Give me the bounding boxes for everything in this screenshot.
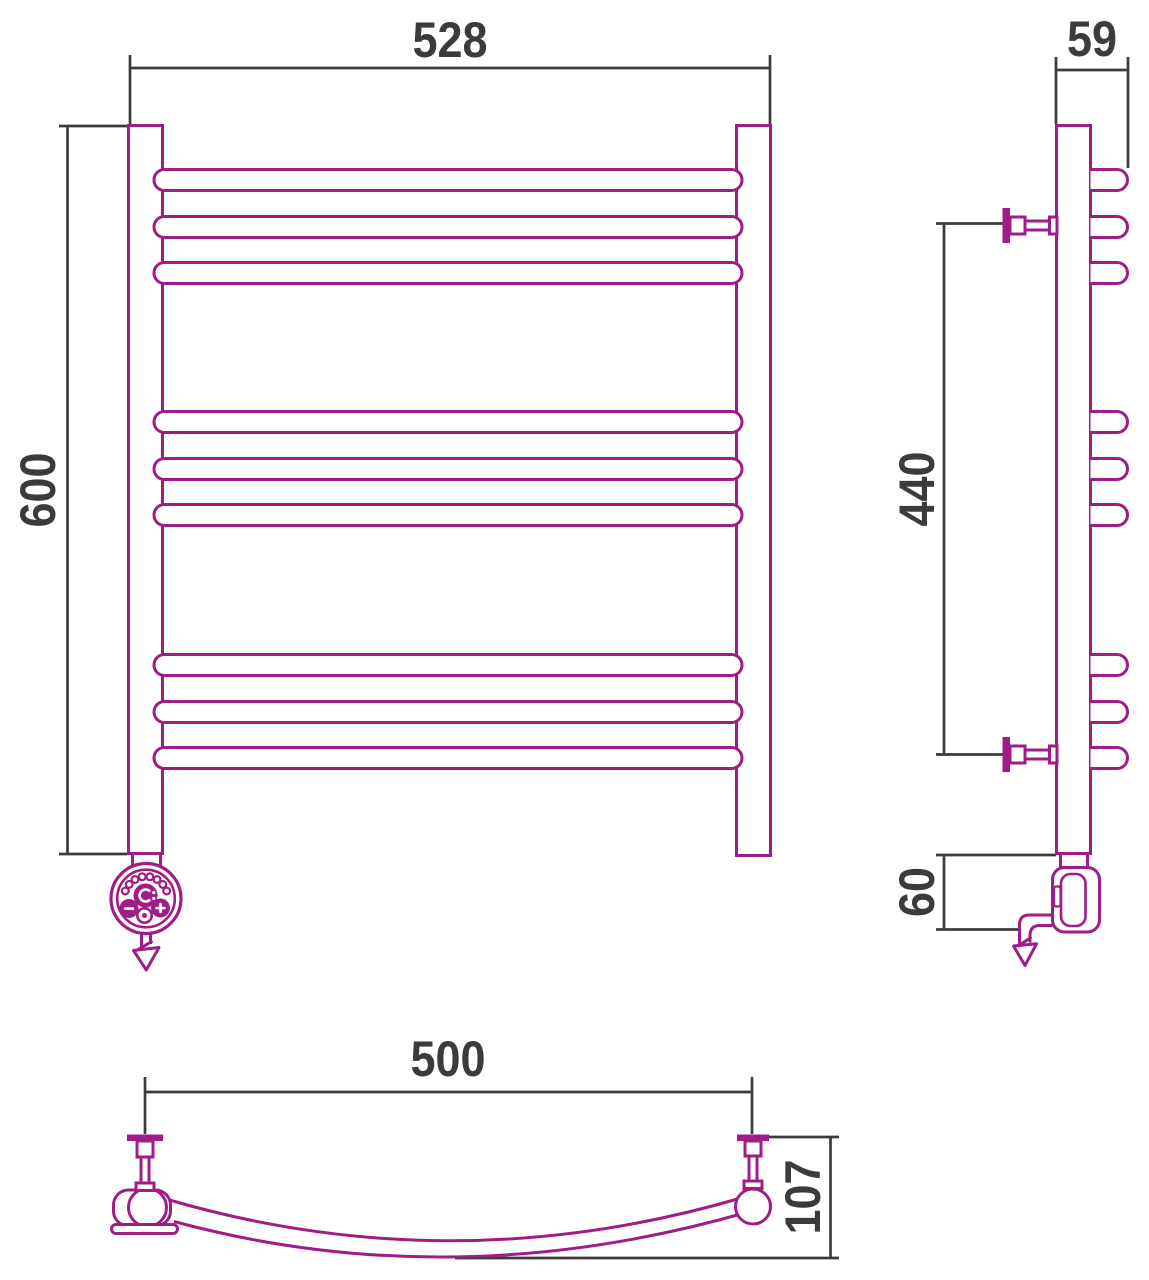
bead bbox=[163, 888, 170, 895]
dimension-lines bbox=[936, 855, 1056, 930]
rungs bbox=[154, 170, 742, 769]
power-cable-side bbox=[1014, 915, 1053, 966]
front-view: 528 600 bbox=[11, 13, 772, 970]
dimension-element-height: 60 bbox=[890, 855, 1056, 930]
bead bbox=[132, 876, 139, 883]
dimension-lines bbox=[59, 126, 128, 854]
wall-bracket-bottom bbox=[1003, 737, 1058, 772]
heating-element-side bbox=[1014, 854, 1100, 966]
bead bbox=[139, 873, 146, 880]
rung-end bbox=[1091, 702, 1128, 723]
side-rung-ends bbox=[1091, 170, 1128, 769]
rung-end bbox=[1091, 655, 1128, 676]
rung-end bbox=[1091, 263, 1128, 284]
rung bbox=[154, 459, 742, 480]
bracket-barrel bbox=[745, 1141, 761, 1156]
bracket-collar bbox=[136, 1183, 154, 1191]
rail-end-ball bbox=[736, 1189, 771, 1224]
element-height-label: 60 bbox=[890, 867, 946, 917]
technical-drawing-towel-rail: 528 600 bbox=[0, 0, 1149, 1280]
bracket-collar bbox=[744, 1181, 762, 1189]
plan-view: 500 107 bbox=[112, 1032, 840, 1258]
minus-icon bbox=[120, 899, 139, 918]
rung-end bbox=[1091, 748, 1128, 769]
drawing-canvas: 528 600 bbox=[0, 0, 1149, 1280]
rung-end bbox=[1091, 505, 1128, 526]
bracket-base-plate bbox=[112, 1225, 178, 1234]
bracket-stem bbox=[141, 1157, 149, 1183]
plan-bracket-right bbox=[736, 1135, 771, 1225]
side-post bbox=[1057, 126, 1091, 854]
rail-end-ball bbox=[129, 1189, 167, 1227]
mount-spacing-label: 440 bbox=[890, 451, 946, 526]
heating-element-front bbox=[111, 854, 181, 971]
rung bbox=[154, 263, 742, 284]
plus-icon bbox=[151, 899, 170, 918]
right-post bbox=[737, 126, 771, 856]
cable-arrow bbox=[1014, 944, 1037, 966]
rung bbox=[154, 505, 742, 526]
indicator-icon bbox=[137, 908, 151, 922]
element-switch-notch bbox=[1054, 887, 1061, 907]
rung-end bbox=[1091, 412, 1128, 433]
side-view: 59 440 60 bbox=[890, 12, 1130, 966]
bracket-barrel bbox=[137, 1141, 153, 1157]
dimension-plan-width: 500 bbox=[145, 1032, 752, 1134]
dimension-front-width: 528 bbox=[129, 13, 772, 125]
side-depth-label: 59 bbox=[1067, 12, 1117, 68]
rung-end bbox=[1091, 217, 1128, 238]
plan-depth-label: 107 bbox=[776, 1159, 832, 1234]
dimension-mount-spacing: 440 bbox=[890, 224, 1004, 755]
rung bbox=[154, 655, 742, 676]
plan-width-label: 500 bbox=[410, 1032, 485, 1088]
rung-end bbox=[1091, 170, 1128, 191]
rung bbox=[154, 217, 742, 238]
bead bbox=[146, 873, 153, 880]
bracket-stem bbox=[749, 1156, 757, 1181]
wall-bracket-top bbox=[1003, 208, 1058, 243]
element-body-inner bbox=[1061, 874, 1086, 926]
front-width-label: 528 bbox=[412, 13, 487, 69]
front-height-label: 600 bbox=[11, 452, 67, 527]
plan-bracket-left bbox=[112, 1135, 178, 1234]
rung bbox=[154, 748, 742, 769]
dimension-lines bbox=[936, 224, 1004, 755]
dimension-front-height: 600 bbox=[11, 126, 128, 854]
rung bbox=[154, 702, 742, 723]
rung bbox=[154, 170, 742, 191]
rung bbox=[154, 412, 742, 433]
rung-end bbox=[1091, 459, 1128, 480]
power-cable-front bbox=[134, 934, 160, 971]
element-collar-side bbox=[1061, 854, 1088, 868]
